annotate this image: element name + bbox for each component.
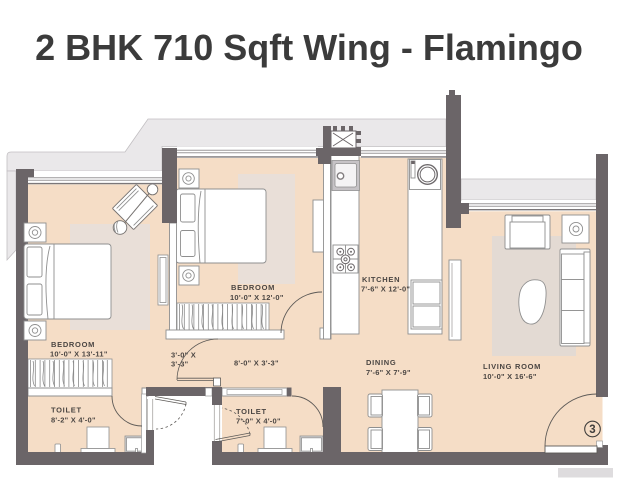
- svg-text:3'-0" X: 3'-0" X: [171, 351, 196, 360]
- svg-text:LIVING ROOM: LIVING ROOM: [483, 362, 541, 371]
- svg-text:KITCHEN: KITCHEN: [362, 275, 400, 284]
- svg-text:7'-6" X 12'-0": 7'-6" X 12'-0": [361, 285, 410, 294]
- svg-text:TOILET: TOILET: [236, 407, 267, 416]
- svg-text:8'-2" X 4'-0": 8'-2" X 4'-0": [51, 416, 96, 425]
- svg-text:2 BHK 710 Sqft Wing - Flamingo: 2 BHK 710 Sqft Wing - Flamingo: [35, 27, 583, 68]
- svg-text:7'-6" X 7'-9": 7'-6" X 7'-9": [366, 368, 411, 377]
- svg-text:BEDROOM: BEDROOM: [231, 283, 275, 292]
- svg-text:BEDROOM: BEDROOM: [51, 340, 95, 349]
- svg-text:DINING: DINING: [366, 358, 396, 367]
- svg-text:10'-0" X 13'-11": 10'-0" X 13'-11": [50, 350, 108, 359]
- svg-text:10'-0" X 12'-0": 10'-0" X 12'-0": [230, 293, 284, 302]
- svg-text:7'-0" X 4'-0": 7'-0" X 4'-0": [236, 417, 281, 426]
- svg-text:3: 3: [589, 424, 595, 436]
- svg-text:10'-0" X 16'-6": 10'-0" X 16'-6": [483, 372, 537, 381]
- svg-text:3'-3": 3'-3": [171, 360, 189, 369]
- svg-text:TOILET: TOILET: [51, 406, 82, 415]
- svg-text:8'-0" X 3'-3": 8'-0" X 3'-3": [234, 359, 279, 368]
